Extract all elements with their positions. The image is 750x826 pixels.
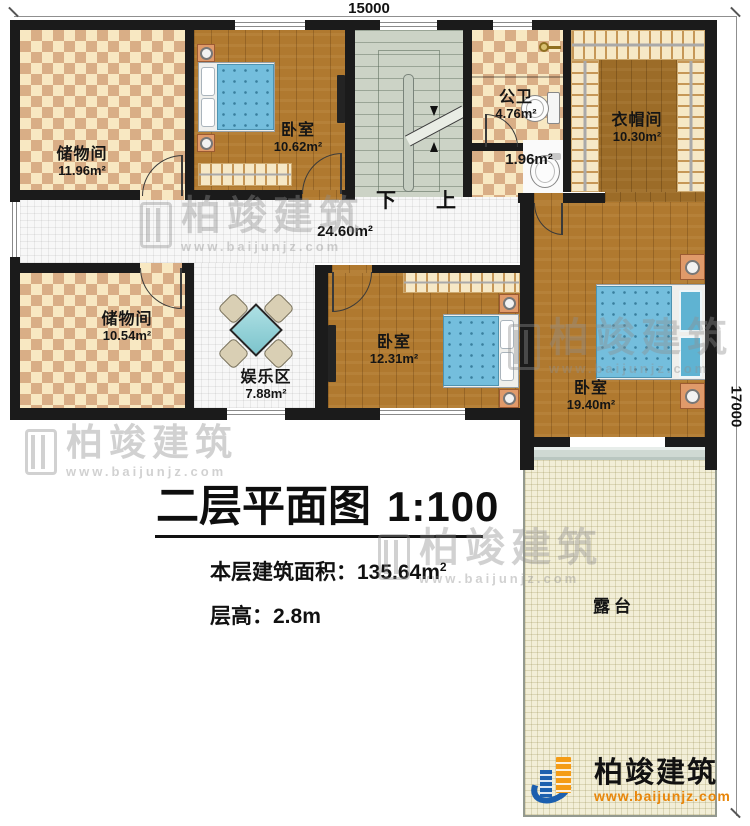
wall xyxy=(465,408,520,420)
wall xyxy=(534,437,570,447)
watermark-url: www.baijunjz.com xyxy=(66,464,238,479)
bedroom2-tv xyxy=(328,325,336,382)
room-name: 卧室 xyxy=(274,122,322,140)
wall xyxy=(520,437,534,470)
wall xyxy=(705,437,717,470)
wall xyxy=(185,263,194,420)
wall xyxy=(10,20,235,30)
watermark-brand: 柏竣建筑 xyxy=(66,424,238,461)
window xyxy=(380,408,465,420)
floor-height-value: 2.8m xyxy=(273,605,321,628)
wall xyxy=(10,190,140,200)
wall xyxy=(185,30,194,200)
dimension-top-value: 15000 xyxy=(348,0,390,17)
room-name: 公卫 xyxy=(495,89,536,107)
title-main: 二层平面图 xyxy=(156,483,371,531)
bedroom2-mattress xyxy=(443,316,499,386)
wall xyxy=(345,20,355,197)
wall xyxy=(518,193,534,203)
room-label-bedroom2: 卧室 12.31m² xyxy=(370,334,418,366)
bedroom1-nightstand-1 xyxy=(197,44,215,62)
cloakroom-wardrobe-left xyxy=(571,60,599,192)
wall xyxy=(372,265,520,273)
watermark: 柏竣建筑 www.baijunjz.com xyxy=(378,528,603,586)
bedroom1-nightstand-2 xyxy=(197,134,215,152)
watermark: 柏竣建筑 www.baijunjz.com xyxy=(25,424,238,479)
room-area: 4.76m² xyxy=(495,107,536,122)
logo-building-orange-icon xyxy=(556,757,571,793)
company-logo-brand: 柏竣建筑 xyxy=(594,758,731,788)
cloakroom-wardrobe-right xyxy=(677,60,705,192)
bedroom1-wardrobe xyxy=(198,163,292,186)
watermark-building-icon xyxy=(508,324,540,370)
room-area: 10.30m² xyxy=(611,130,662,145)
bedroom1-mattress xyxy=(217,64,274,130)
bedroom2-nightstand-2 xyxy=(499,389,519,408)
stair-up-label: 上 xyxy=(436,184,456,213)
room-name: 露台 xyxy=(593,597,635,616)
title-scale: 1:100 xyxy=(387,483,499,530)
room-area: 10.62m² xyxy=(274,140,322,155)
watermark-brand: 柏竣建筑 xyxy=(181,196,365,236)
room-name: 衣帽间 xyxy=(611,112,662,130)
wall xyxy=(563,20,571,192)
watermark-building-icon xyxy=(140,202,172,248)
bedroom1-tv xyxy=(337,75,345,123)
watermark-brand: 柏竣建筑 xyxy=(419,528,603,568)
room-name: 卧室 xyxy=(567,380,615,398)
room-name: 储物间 xyxy=(101,311,152,329)
watermark-url: www.baijunjz.com xyxy=(419,571,603,586)
company-logo: 柏竣建筑 www.baijunjz.com xyxy=(530,754,731,808)
room-area: 12.31m² xyxy=(370,352,418,367)
room-name: 娱乐区 xyxy=(240,369,291,387)
company-logo-url: www.baijunjz.com xyxy=(594,788,731,804)
watermark-text: 柏竣建筑 www.baijunjz.com xyxy=(66,424,238,479)
wall xyxy=(10,257,20,420)
company-logo-text: 柏竣建筑 www.baijunjz.com xyxy=(594,758,731,804)
wall xyxy=(182,263,194,273)
stair-arrow-down-icon xyxy=(430,106,438,116)
window xyxy=(10,202,20,257)
watermark-url: www.baijunjz.com xyxy=(549,361,733,376)
watermark: 柏竣建筑 www.baijunjz.com xyxy=(508,318,733,376)
wall xyxy=(10,263,140,273)
stair-down-label: 下 xyxy=(376,184,396,213)
dimension-right-value: 17000 xyxy=(728,377,745,437)
room-label-entertainment: 娱乐区 7.88m² xyxy=(240,369,291,401)
bedroom2-wardrobe xyxy=(403,272,520,293)
room-label-storage1: 储物间 11.96m² xyxy=(56,146,107,178)
watermark: 柏竣建筑 www.baijunjz.com xyxy=(140,196,365,254)
watermark-text: 柏竣建筑 www.baijunjz.com xyxy=(549,318,733,376)
wall xyxy=(315,273,328,420)
wall xyxy=(10,20,20,202)
watermark-brand: 柏竣建筑 xyxy=(549,318,733,358)
window xyxy=(227,408,285,420)
shower-faucet-arm xyxy=(548,46,561,49)
bath-partition-line xyxy=(472,76,563,78)
watermark-building-icon xyxy=(25,429,57,475)
watermark-text: 柏竣建筑 www.baijunjz.com xyxy=(419,528,603,586)
bedroom1-pillow-2 xyxy=(201,98,215,127)
watermark-url: www.baijunjz.com xyxy=(181,239,365,254)
room-area: 19.40m² xyxy=(567,398,615,413)
room-name: 卧室 xyxy=(370,334,418,352)
room-label-cloakroom: 衣帽间 10.30m² xyxy=(611,112,662,144)
room-area: 11.96m² xyxy=(56,164,107,179)
page-title: 二层平面图1:100 xyxy=(156,484,499,531)
wall xyxy=(563,193,605,203)
floor-area-label: 本层建筑面积： xyxy=(210,561,357,584)
window xyxy=(235,20,305,30)
bedroom3-nightstand-1 xyxy=(680,254,705,280)
window xyxy=(493,20,532,30)
wall xyxy=(532,20,717,30)
terrace-door-sill xyxy=(532,447,707,460)
wall xyxy=(665,437,705,447)
wall xyxy=(305,20,380,30)
room-area: 1.96m² xyxy=(505,152,553,169)
wall xyxy=(315,265,332,273)
room-name: 储物间 xyxy=(56,146,107,164)
bedroom2-nightstand-1 xyxy=(499,294,519,313)
floor-plan: 储物间 11.96m² 卧室 10.62m² 公卫 4.76m² 1.96m² … xyxy=(0,0,750,826)
room-label-wc: 1.96m² xyxy=(505,152,553,169)
floor-height-label: 层高： xyxy=(210,605,273,628)
room-area: 10.54m² xyxy=(101,329,152,344)
room-label-bedroom1: 卧室 10.62m² xyxy=(274,122,322,154)
wall xyxy=(705,20,717,447)
company-logo-icon xyxy=(530,754,584,808)
logo-building-blue-icon xyxy=(540,770,552,797)
wall xyxy=(285,408,380,420)
wall xyxy=(10,408,227,420)
watermark-building-icon xyxy=(378,534,410,580)
room-label-bedroom3: 卧室 19.40m² xyxy=(567,380,615,412)
bedroom3-nightstand-2 xyxy=(680,383,705,409)
floor-height-line: 层高：2.8m xyxy=(210,600,321,630)
watermark-text: 柏竣建筑 www.baijunjz.com xyxy=(181,196,365,254)
cloakroom-wardrobe-top xyxy=(571,30,705,60)
stair-arrow-up-icon xyxy=(430,142,438,152)
window xyxy=(380,20,437,30)
room-area: 7.88m² xyxy=(240,387,291,402)
wall xyxy=(463,20,472,197)
room-label-bath: 公卫 4.76m² xyxy=(495,89,536,121)
bedroom1-pillow-1 xyxy=(201,67,215,96)
bedroom3-door-patch xyxy=(534,193,563,203)
room-label-terrace: 露台 xyxy=(593,597,635,616)
room-label-storage2: 储物间 10.54m² xyxy=(101,311,152,343)
